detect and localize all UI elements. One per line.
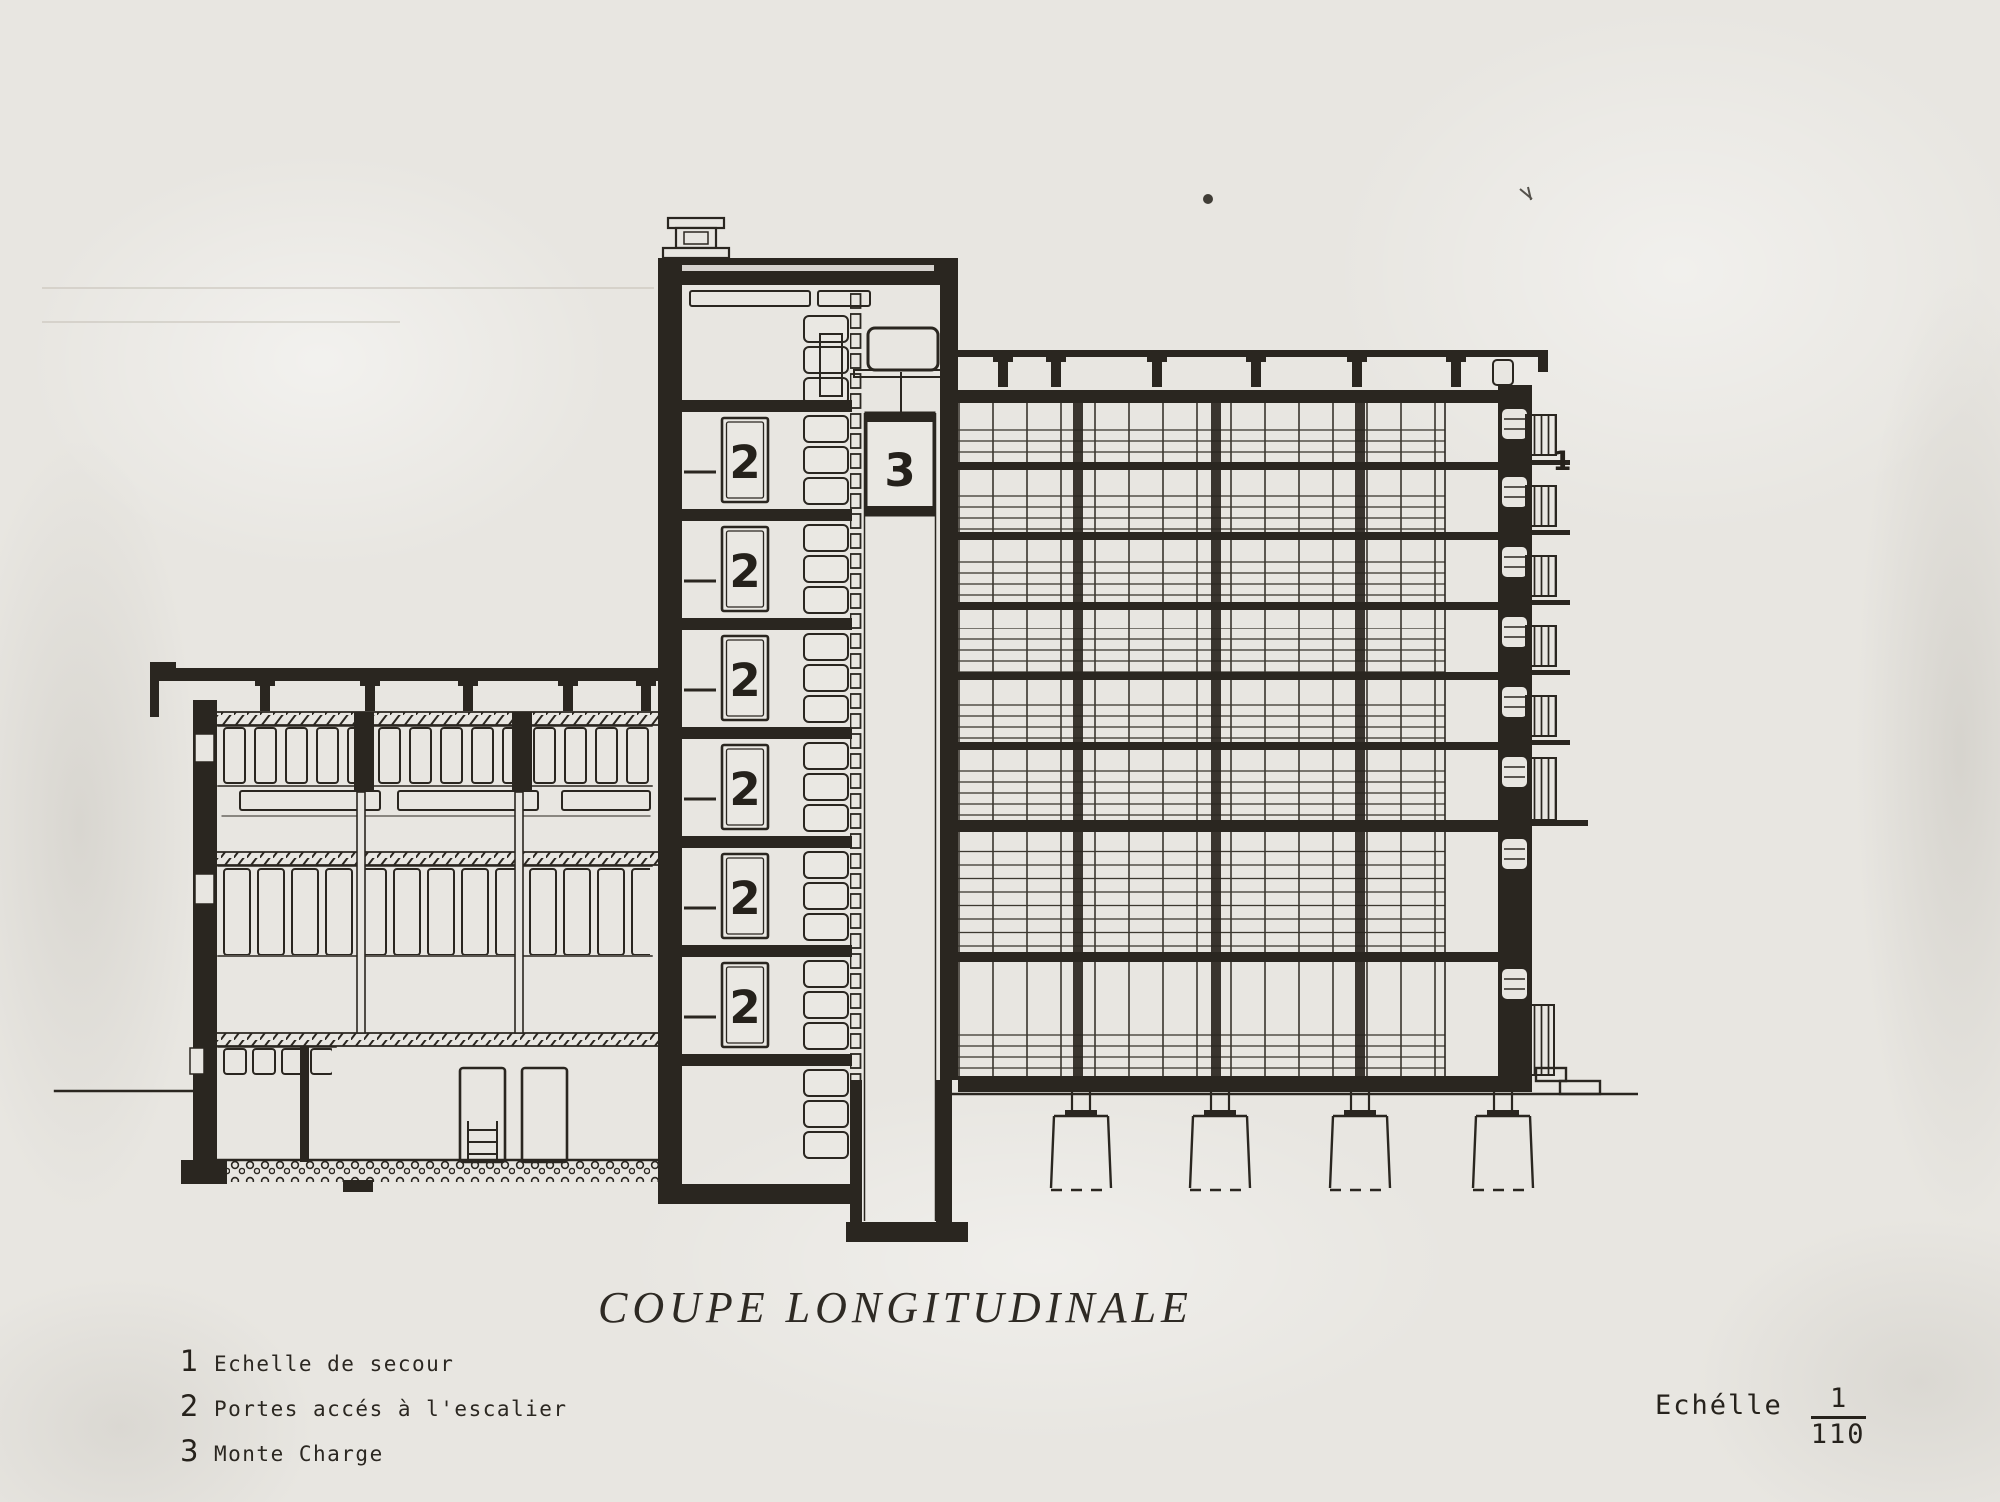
curtain-wall-glazing — [958, 403, 1445, 1076]
section-drawing: 2 2 2 2 2 2 3 1 — [0, 0, 2000, 1502]
middle-windows — [218, 866, 652, 956]
landing-ticks — [684, 472, 716, 1017]
scanned-section-sheet: 2 2 2 2 2 2 3 1 COUPE LONGITUDINALE 1 Ec… — [0, 0, 2000, 1502]
foundations — [950, 1092, 1638, 1190]
tower-base-slab — [660, 1184, 860, 1204]
clerestory-windows — [218, 726, 652, 786]
elevator-label: 3 — [884, 444, 915, 497]
scale-denominator: 110 — [1811, 1419, 1866, 1451]
spandrel-panels — [222, 791, 650, 816]
fire-escape-label: 1 — [1553, 446, 1572, 477]
sheet-title: COUPE LONGITUDINALE — [598, 1282, 1118, 1333]
legend-item-3: 3 Monte Charge — [180, 1434, 568, 1479]
ground-floor-doors — [460, 1068, 567, 1162]
roof-parapet-panels — [690, 291, 870, 306]
left-wing-base — [217, 1160, 660, 1192]
pencil-guide-lines — [42, 288, 654, 322]
hoist-motor — [868, 328, 938, 370]
door-label: 2 — [729, 654, 760, 707]
stair-tower — [658, 218, 968, 1242]
door-label: 2 — [729, 545, 760, 598]
scale-note: Echélle 1 110 — [1655, 1384, 1866, 1451]
right-building — [958, 350, 1600, 1094]
legend-label: Echelle de secour — [214, 1352, 454, 1376]
door-label: 2 — [729, 872, 760, 925]
legend-label: Monte Charge — [214, 1442, 384, 1466]
legend-item-1: 1 Echelle de secour — [180, 1344, 568, 1389]
scale-numerator: 1 — [1811, 1384, 1866, 1419]
scale-fraction: 1 110 — [1811, 1384, 1866, 1451]
left-wall — [181, 700, 227, 1184]
legend-number: 2 — [180, 1389, 214, 1423]
tower-left-wall — [658, 258, 682, 1204]
right-building-roof — [958, 350, 1548, 387]
door-label: 2 — [729, 763, 760, 816]
scale-word: Echélle — [1655, 1384, 1783, 1421]
legend-item-2: 2 Portes accés à l'escalier — [180, 1389, 568, 1434]
left-wing — [55, 662, 662, 1192]
legend: 1 Echelle de secour 2 Portes accés à l'e… — [180, 1344, 568, 1479]
scan-artifacts — [1203, 187, 1532, 204]
interior-ladder — [468, 1122, 497, 1160]
elevator-pit-foundation — [846, 1222, 968, 1242]
door-label: 2 — [729, 981, 760, 1034]
ground-floor-windows — [218, 1047, 336, 1076]
legend-label: Portes accés à l'escalier — [214, 1397, 568, 1421]
tower-right-wall — [940, 285, 958, 1080]
legend-number: 3 — [180, 1434, 214, 1468]
roof-vent — [663, 218, 729, 258]
door-label: 2 — [729, 436, 760, 489]
legend-number: 1 — [180, 1344, 214, 1378]
